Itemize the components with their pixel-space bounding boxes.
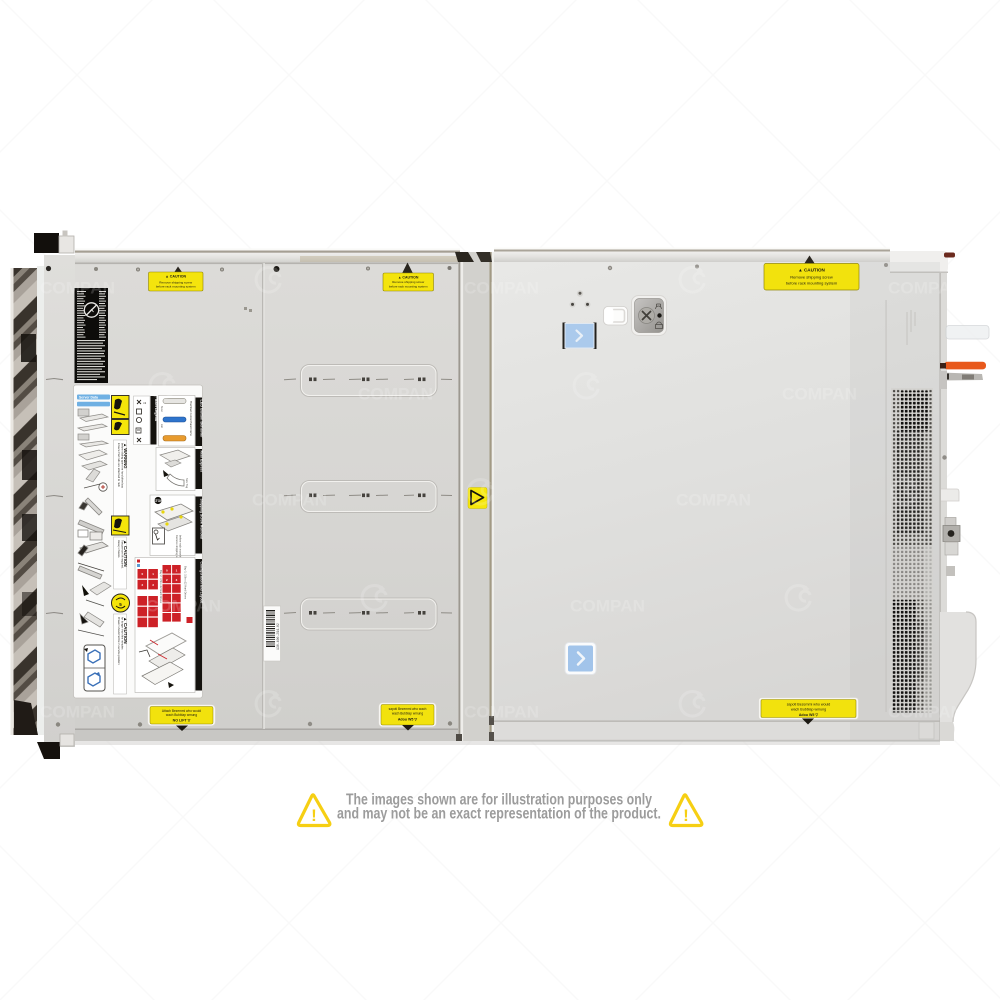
svg-text:Remove shipping screw: Remove shipping screw — [790, 275, 833, 280]
svg-text:before rack mounting system: before rack mounting system — [389, 284, 428, 288]
svg-text:COMPAN: COMPAN — [464, 703, 539, 722]
svg-text:COMPAN: COMPAN — [252, 491, 327, 510]
svg-text:wach Bubblap wmung: wach Bubblap wmung — [392, 711, 423, 715]
svg-text:×2: ×2 — [143, 401, 147, 405]
svg-text:Icon Legend: Icon Legend — [154, 399, 158, 422]
svg-text:sapoti Bezemmi who would: sapoti Bezemmi who would — [787, 703, 831, 707]
svg-text:Shipping Screw Removal: Shipping Screw Removal — [199, 499, 203, 540]
svg-text:COMPAN: COMPAN — [358, 385, 433, 404]
svg-text:sapoti Bezemmi who wach: sapoti Bezemmi who wach — [389, 707, 427, 711]
svg-text:Bezel: Bezel — [160, 406, 162, 412]
svg-text:before rack mounting system: before rack mounting system — [156, 285, 196, 289]
svg-text:!: ! — [683, 806, 689, 825]
svg-text:Attach Bezemmi who would: Attach Bezemmi who would — [162, 709, 201, 713]
svg-text:Adou W5 ▽: Adou W5 ▽ — [799, 713, 820, 717]
svg-text:COMPAN: COMPAN — [888, 279, 963, 298]
svg-text:Exit: Exit — [160, 424, 163, 428]
svg-text:Two person lift required.: Two person lift required. — [120, 540, 124, 569]
svg-text:before rack mounting system: before rack mounting system — [786, 281, 838, 286]
svg-text:COMPAN: COMPAN — [570, 597, 645, 616]
svg-text:COMPAN: COMPAN — [782, 385, 857, 404]
svg-text:▲ CAUTION: ▲ CAUTION — [398, 275, 419, 279]
svg-text:before rack mounting: before rack mounting — [179, 535, 183, 560]
svg-text:STOP: STOP — [153, 499, 163, 503]
svg-text:▲ CAUTION: ▲ CAUTION — [165, 275, 186, 279]
svg-text:!: ! — [311, 806, 317, 825]
svg-text:Server Data: Server Data — [79, 396, 98, 400]
svg-text:Rear Express: Rear Express — [199, 451, 203, 473]
svg-text:for longer than five minutes: for longer than five minutes — [120, 617, 124, 650]
svg-text:and may not be an exact repres: and may not be an exact representation o… — [337, 806, 661, 823]
svg-text:Thumbwri Control Panel Frame: Thumbwri Control Panel Frame — [189, 401, 192, 436]
svg-text:COMPAN: COMPAN — [888, 703, 963, 722]
svg-text:NO LIFT ▽: NO LIFT ▽ — [173, 719, 192, 723]
svg-text:⚡: ⚡ — [475, 496, 479, 501]
svg-text:wach Bubblap wmung: wach Bubblap wmung — [166, 713, 197, 717]
svg-text:▲ CAUTION: ▲ CAUTION — [798, 268, 825, 273]
svg-text:before sliding open the hard d: before sliding open the hard drive bay — [120, 443, 124, 489]
svg-text:COMPAN: COMPAN — [464, 279, 539, 298]
svg-text:130-400-294-02: 130-400-294-02 — [276, 623, 280, 650]
svg-text:wach Bubblap wmung: wach Bubblap wmung — [791, 708, 826, 712]
svg-text:COMPAN: COMPAN — [676, 491, 751, 510]
svg-text:Serv Tag: Serv Tag — [185, 478, 189, 489]
svg-text:COMPAN: COMPAN — [146, 597, 221, 616]
svg-text:LED Button Behavior: LED Button Behavior — [199, 400, 203, 439]
svg-text:Bay 1: 3.5in x12 Hard Drives: Bay 1: 3.5in x12 Hard Drives — [184, 566, 188, 600]
svg-text:COMPAN: COMPAN — [40, 703, 115, 722]
svg-text:Adou W5 ▽: Adou W5 ▽ — [398, 718, 419, 722]
svg-text:COMPAN: COMPAN — [40, 279, 115, 298]
